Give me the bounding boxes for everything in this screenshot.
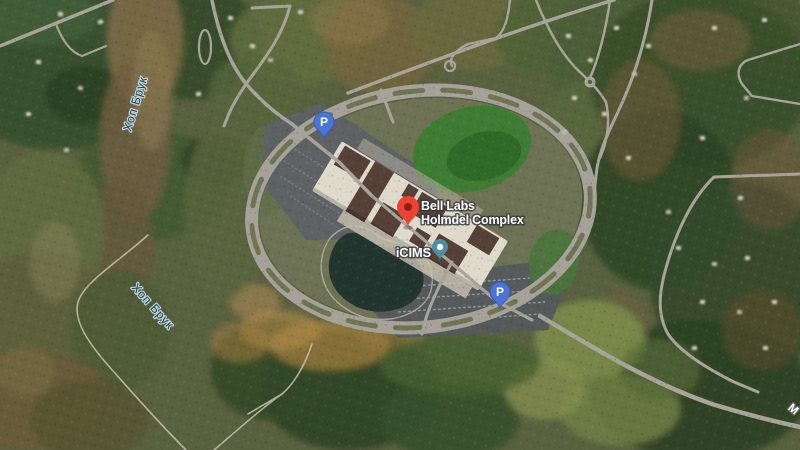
parking-glyph: P bbox=[496, 285, 504, 299]
icims-label[interactable]: iCIMS bbox=[396, 245, 432, 260]
parking-glyph: P bbox=[320, 115, 328, 129]
satellite-grain bbox=[0, 0, 800, 450]
bell-labs-label-line2: Holmdel Complex bbox=[421, 213, 524, 227]
pin-shadow bbox=[403, 226, 413, 230]
bell-labs-label-line1: Bell Labs bbox=[421, 199, 475, 213]
poi-dot-center bbox=[437, 244, 443, 250]
map-canvas[interactable]: Хоп Брук Хоп Брук M P P iCIMS Bell Labs … bbox=[0, 0, 800, 450]
satellite-imagery: Хоп Брук Хоп Брук M P P iCIMS Bell Labs … bbox=[0, 0, 800, 450]
pin-hole bbox=[404, 203, 412, 211]
